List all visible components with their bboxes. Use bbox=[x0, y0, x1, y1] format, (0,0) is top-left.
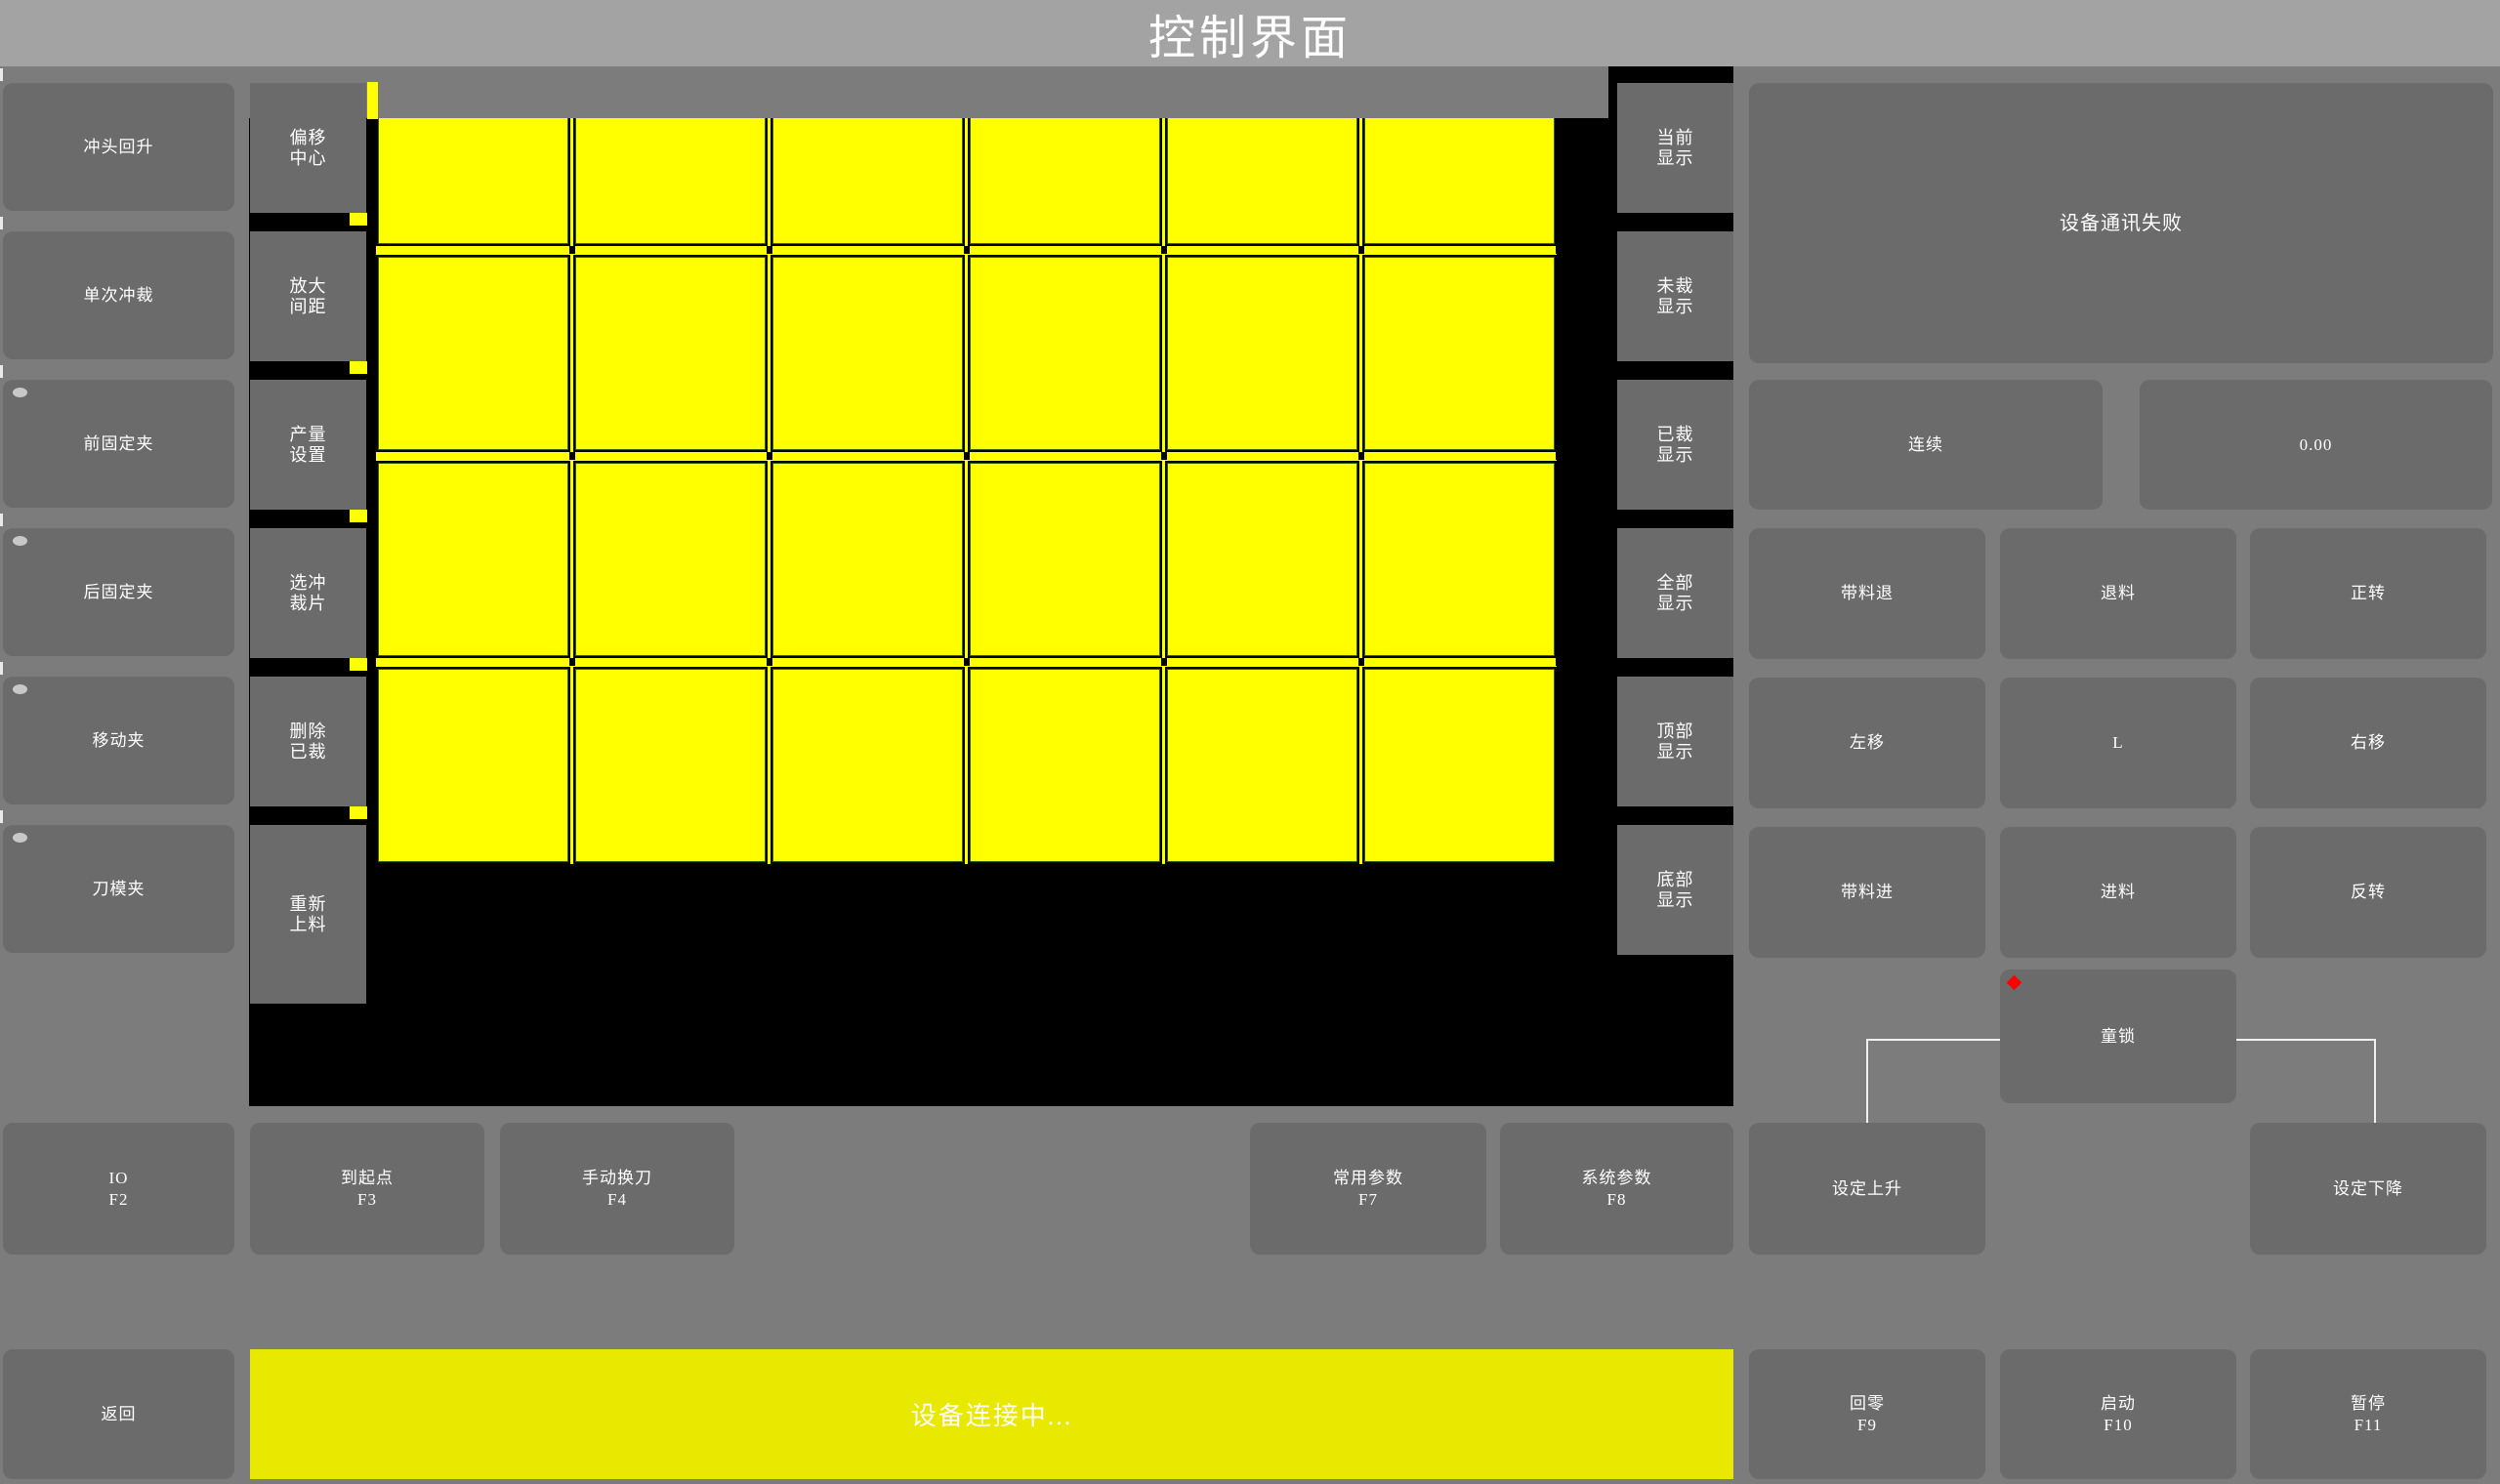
home-f9-button[interactable]: 回零F9 bbox=[1749, 1349, 1985, 1479]
set-lower-button[interactable]: 设定下降 bbox=[2250, 1123, 2486, 1255]
material-piece[interactable] bbox=[376, 667, 570, 864]
rear-clamp-button[interactable]: 后固定夹 bbox=[3, 528, 234, 656]
front-clamp-button[interactable]: 前固定夹 bbox=[3, 380, 234, 508]
material-piece[interactable] bbox=[968, 461, 1162, 658]
edge-mark bbox=[0, 810, 3, 823]
title-bar: 控制界面 bbox=[0, 0, 2500, 66]
material-piece[interactable] bbox=[573, 461, 768, 658]
common-params-f7-button[interactable]: 常用参数F7 bbox=[1250, 1123, 1486, 1255]
alert-red-dot bbox=[2007, 975, 2022, 991]
material-edge-bar bbox=[367, 82, 378, 119]
edge-mark bbox=[0, 514, 3, 526]
back-button[interactable]: 返回 bbox=[3, 1349, 234, 1479]
material-piece[interactable] bbox=[771, 461, 965, 658]
status-indicator-dot bbox=[13, 536, 27, 546]
material-piece[interactable] bbox=[771, 667, 965, 864]
edge-mark bbox=[0, 68, 3, 81]
die-clamp-button[interactable]: 刀模夹 bbox=[3, 825, 234, 953]
connector-line bbox=[1866, 1039, 2000, 1041]
value-display-field: 0.00 bbox=[2140, 380, 2492, 510]
rotate-reverse-button[interactable]: 反转 bbox=[2250, 827, 2486, 958]
status-indicator-dot bbox=[13, 833, 27, 843]
unload-material-button[interactable]: 退料 bbox=[2000, 528, 2236, 659]
select-piece-button[interactable]: 选冲裁片 bbox=[250, 528, 366, 658]
canvas-top-mask bbox=[249, 66, 1608, 118]
display-all-button[interactable]: 全部显示 bbox=[1617, 528, 1733, 658]
connection-status-bar: 设备连接中... bbox=[250, 1349, 1733, 1479]
gap-marker bbox=[350, 361, 367, 374]
material-piece[interactable] bbox=[771, 255, 965, 452]
cutting-layout-canvas[interactable]: 偏移中心 放大间距 产量设置 选冲裁片 删除已裁 重新上料 当前显示 未裁显示 … bbox=[249, 66, 1733, 1106]
to-origin-f3-button[interactable]: 到起点F3 bbox=[250, 1123, 484, 1255]
material-piece[interactable] bbox=[573, 667, 768, 864]
enlarge-spacing-button[interactable]: 放大间距 bbox=[250, 231, 366, 361]
material-piece[interactable] bbox=[968, 667, 1162, 864]
io-f2-button[interactable]: IOF2 bbox=[3, 1123, 234, 1255]
device-status-box: 设备通讯失败 bbox=[1749, 83, 2493, 363]
feed-in-with-material-button[interactable]: 带料进 bbox=[1749, 827, 1985, 958]
manual-tool-change-f4-button[interactable]: 手动换刀F4 bbox=[500, 1123, 734, 1255]
feed-back-with-material-button[interactable]: 带料退 bbox=[1749, 528, 1985, 659]
edge-mark bbox=[0, 365, 3, 378]
l-button[interactable]: L bbox=[2000, 678, 2236, 808]
move-right-button[interactable]: 右移 bbox=[2250, 678, 2486, 808]
page-title: 控制界面 bbox=[1148, 0, 1352, 67]
status-indicator-dot bbox=[13, 684, 27, 694]
offset-center-button[interactable]: 偏移中心 bbox=[250, 83, 366, 213]
feed-material-button[interactable]: 进料 bbox=[2000, 827, 2236, 958]
display-cut-button[interactable]: 已裁显示 bbox=[1617, 380, 1733, 510]
pause-f11-button[interactable]: 暂停F11 bbox=[2250, 1349, 2486, 1479]
material-piece[interactable] bbox=[1165, 667, 1359, 864]
material-piece[interactable] bbox=[1362, 461, 1557, 658]
material-piece[interactable] bbox=[376, 461, 570, 658]
material-piece[interactable] bbox=[573, 255, 768, 452]
gap-marker bbox=[350, 510, 367, 522]
delete-cut-button[interactable]: 删除已裁 bbox=[250, 677, 366, 806]
move-left-button[interactable]: 左移 bbox=[1749, 678, 1985, 808]
display-bottom-button[interactable]: 底部显示 bbox=[1617, 825, 1733, 955]
set-rise-button[interactable]: 设定上升 bbox=[1749, 1123, 1985, 1255]
connector-line bbox=[2374, 1039, 2376, 1123]
output-setting-button[interactable]: 产量设置 bbox=[250, 380, 366, 510]
material-piece[interactable] bbox=[1362, 667, 1557, 864]
material-piece[interactable] bbox=[968, 255, 1162, 452]
connector-line bbox=[1866, 1039, 1868, 1123]
start-f10-button[interactable]: 启动F10 bbox=[2000, 1349, 2236, 1479]
status-indicator-dot bbox=[13, 388, 27, 397]
pieces-grid bbox=[376, 66, 1557, 864]
material-piece[interactable] bbox=[1362, 255, 1557, 452]
display-top-button[interactable]: 顶部显示 bbox=[1617, 677, 1733, 806]
edge-mark bbox=[0, 217, 3, 229]
gap-marker bbox=[350, 213, 367, 226]
material-piece[interactable] bbox=[1165, 461, 1359, 658]
connector-line bbox=[2236, 1039, 2376, 1041]
rotate-forward-button[interactable]: 正转 bbox=[2250, 528, 2486, 659]
edge-mark bbox=[0, 662, 3, 675]
punch-raise-button[interactable]: 冲头回升 bbox=[3, 83, 234, 211]
gap-marker bbox=[350, 806, 367, 819]
material-piece[interactable] bbox=[376, 255, 570, 452]
control-screen: { "title": "控制界面", "left_panel": { "butt… bbox=[0, 0, 2500, 1484]
display-current-button[interactable]: 当前显示 bbox=[1617, 83, 1733, 213]
child-lock-button[interactable]: 童锁 bbox=[2000, 969, 2236, 1103]
gap-marker bbox=[350, 658, 367, 671]
display-uncut-button[interactable]: 未裁显示 bbox=[1617, 231, 1733, 361]
single-punch-button[interactable]: 单次冲裁 bbox=[3, 231, 234, 359]
moving-clamp-button[interactable]: 移动夹 bbox=[3, 677, 234, 804]
system-params-f8-button[interactable]: 系统参数F8 bbox=[1500, 1123, 1733, 1255]
material-piece[interactable] bbox=[1165, 255, 1359, 452]
reload-material-button[interactable]: 重新上料 bbox=[250, 825, 366, 1004]
status-message: 设备通讯失败 bbox=[2060, 213, 2183, 234]
mode-continuous-button[interactable]: 连续 bbox=[1749, 380, 2103, 510]
